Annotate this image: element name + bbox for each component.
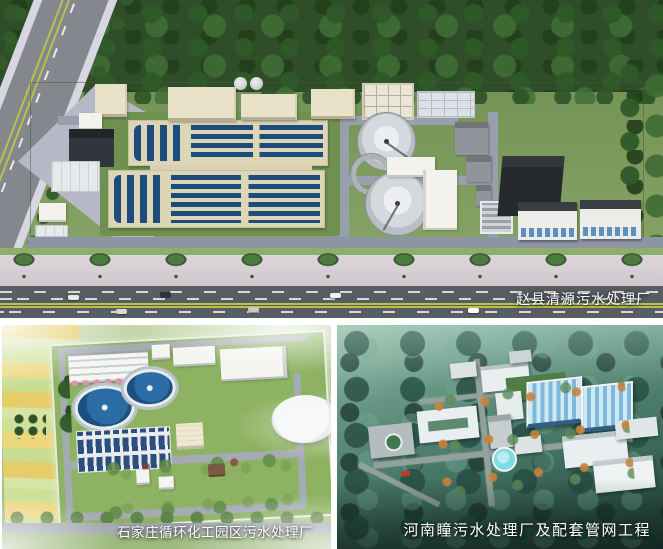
rendering-shijiazhuang-wwtp[interactable]: 石家庄循环化工园区污水处理厂	[2, 325, 331, 549]
pump-house	[39, 203, 66, 222]
tall-white-building	[423, 170, 457, 230]
street-tree-row	[0, 247, 663, 285]
caption-shijiazhuang: 石家庄循环化工园区污水处理厂	[117, 521, 313, 541]
rendering-zhaoxian-qingyuan-wwtp[interactable]: 赵县清源污水处理厂	[0, 0, 663, 318]
covered-tank-dome	[270, 393, 331, 444]
lane-dash-3	[0, 311, 663, 313]
clarifier-blue-2	[123, 368, 177, 409]
clarifier-hub-2	[395, 201, 400, 206]
caption-henan: 河南瞳污水处理厂及配套管网工程	[403, 519, 651, 540]
window-strip-2	[583, 227, 638, 236]
tree-cluster	[53, 375, 72, 436]
process-building-2	[241, 94, 297, 120]
workshop-blue-windows-1	[518, 202, 577, 240]
car-4	[330, 293, 341, 298]
process-building-1	[168, 87, 236, 121]
small-house-1	[136, 469, 150, 485]
straight-channels-2	[171, 175, 320, 223]
rendering-henan-wwtp[interactable]: 河南瞳污水处理厂及配套管网工程	[337, 325, 663, 549]
clarifier-arm-1	[386, 142, 409, 159]
clarifier-center-1	[102, 404, 108, 410]
flat-filter-basin	[417, 91, 475, 118]
serpentine-channel-2	[114, 175, 166, 223]
small-tank-row	[35, 225, 68, 237]
clarifier-center-2	[147, 385, 153, 391]
field-trees	[12, 413, 46, 439]
north-building-1	[450, 361, 477, 379]
red-truck	[401, 471, 410, 477]
entrance-plaza	[368, 422, 415, 458]
car-2	[160, 292, 171, 297]
clarifier-arm-2	[382, 204, 398, 230]
window-strip-1	[521, 228, 574, 237]
gray-building-1	[455, 122, 488, 155]
inlet-tank-block	[51, 161, 100, 192]
north-building-3	[509, 349, 532, 363]
car-6	[116, 309, 127, 314]
plaza-garden	[384, 432, 404, 452]
small-white-building	[79, 113, 102, 130]
caption-zhaoxian: 赵县清源污水处理厂	[516, 289, 651, 309]
oxidation-ditch-basin-1	[128, 120, 328, 166]
car-3	[248, 307, 259, 312]
small-house-2	[158, 476, 174, 490]
pavilion	[208, 463, 226, 477]
serpentine-channel-1	[134, 125, 186, 161]
car-5	[468, 308, 479, 313]
clarifier-hub-1	[384, 139, 389, 144]
process-building-3	[311, 89, 355, 119]
straight-channels-1	[191, 125, 323, 161]
plant-compound	[49, 330, 331, 530]
white-flat-building-2	[220, 346, 288, 381]
car-1	[68, 295, 79, 300]
white-flat-building-1	[173, 346, 216, 367]
oxidation-ditch-basin-2	[108, 170, 325, 228]
gray-building-2	[466, 156, 491, 182]
clarifier-2	[365, 171, 430, 236]
project-gallery: 赵县清源污水处理厂	[0, 0, 663, 549]
silo-tank-1	[234, 77, 247, 90]
white-tower	[151, 344, 170, 360]
workshop-blue-windows-2	[580, 200, 641, 239]
silo-tank-2	[250, 77, 263, 90]
